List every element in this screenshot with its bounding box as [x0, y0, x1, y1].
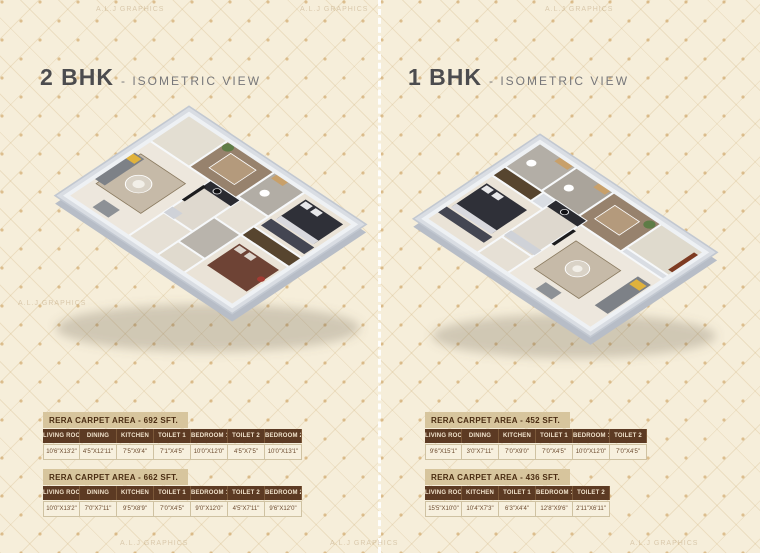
room-header-cell: TOILET 2	[228, 486, 265, 500]
floorplan-2bhk-isometric	[36, 100, 380, 372]
room-header-cell: TOILET 2	[573, 486, 610, 500]
room-header-cell: KITCHEN	[117, 429, 154, 443]
room-header-cell: LIVING ROOM	[43, 429, 80, 443]
room-header-cell: DINING	[80, 429, 117, 443]
rera-carpet-area-table: RERA CARPET AREA - 662 SFT. LIVING ROOMD…	[43, 467, 302, 517]
room-size-cell: 4'5"X7'11"	[228, 501, 265, 517]
room-header-cell: BEDROOM 1	[191, 429, 228, 443]
room-size-row: 15'5"X10'0"10'4"X7'3"6'3"X4'4"12'8"X9'6"…	[425, 500, 610, 517]
room-header-cell: TOILET 1	[536, 429, 573, 443]
room-header-cell: KITCHEN	[117, 486, 154, 500]
room-size-cell: 6'3"X4'4"	[499, 501, 536, 517]
room-header-cell: DINING	[462, 429, 499, 443]
room-size-row: 9'6"X15'1"3'0"X7'11"7'0"X9'0"7'0"X4'5"10…	[425, 443, 647, 460]
room-size-cell: 10'0"X13'1"	[265, 444, 302, 460]
rera-carpet-area-table: RERA CARPET AREA - 436 SFT. LIVING ROOMK…	[425, 467, 610, 517]
rera-carpet-area-title: RERA CARPET AREA - 692 SFT.	[43, 412, 188, 428]
room-header-cell: BEDROOM 1	[536, 486, 573, 500]
room-header-cell: LIVING ROOM	[425, 486, 462, 500]
view-type-label: - ISOMETRIC VIEW	[121, 74, 261, 88]
room-size-cell: 10'0"X12'0"	[191, 444, 228, 460]
room-size-row: 10'0"X13'2"7'0"X7'11"9'5"X8'9"7'0"X4'5"9…	[43, 500, 302, 517]
room-size-cell: 7'0"X4'5"	[610, 444, 647, 460]
room-header-cell: TOILET 2	[228, 429, 265, 443]
room-size-cell: 3'0"X7'11"	[462, 444, 499, 460]
room-size-cell: 9'6"X15'1"	[425, 444, 462, 460]
room-size-cell: 10'0"X13'2"	[43, 501, 80, 517]
page-title-2bhk: 2 BHK - ISOMETRIC VIEW	[40, 64, 261, 91]
room-size-cell: 7'0"X7'11"	[80, 501, 117, 517]
rera-carpet-area-title: RERA CARPET AREA - 662 SFT.	[43, 469, 188, 485]
room-size-cell: 9'0"X12'0"	[191, 501, 228, 517]
panel-2bhk: 2 BHK - ISOMETRIC VIEW	[0, 0, 380, 553]
rera-carpet-area-title: RERA CARPET AREA - 436 SFT.	[425, 469, 570, 485]
room-header-cell: BEDROOM 1	[573, 429, 610, 443]
room-size-cell: 9'5"X8'9"	[117, 501, 154, 517]
page-title-1bhk: 1 BHK - ISOMETRIC VIEW	[408, 64, 629, 91]
room-size-cell: 7'1"X4'5"	[154, 444, 191, 460]
panel-1bhk: 1 BHK - ISOMETRIC VIEW	[380, 0, 760, 553]
room-size-cell: 12'8"X9'6"	[536, 501, 573, 517]
room-header-row: LIVING ROOMDININGKITCHENTOILET 1BEDROOM …	[43, 429, 302, 443]
room-size-cell: 10'0"X12'0"	[573, 444, 610, 460]
room-size-row: 10'6"X13'2"4'5"X12'11"7'5"X9'4"7'1"X4'5"…	[43, 443, 302, 460]
room-header-row: LIVING ROOMDININGKITCHENTOILET 1BEDROOM …	[425, 429, 647, 443]
room-header-cell: DINING	[80, 486, 117, 500]
room-size-cell: 15'5"X10'0"	[425, 501, 462, 517]
room-header-cell: KITCHEN	[462, 486, 499, 500]
room-size-cell: 9'6"X12'0"	[265, 501, 302, 517]
unit-type-label: 1 BHK	[408, 64, 482, 91]
room-size-cell: 10'4"X7'3"	[462, 501, 499, 517]
room-size-cell: 7'0"X9'0"	[499, 444, 536, 460]
floorplan-1bhk-isometric	[412, 126, 736, 374]
room-size-cell: 10'6"X13'2"	[43, 444, 80, 460]
room-header-cell: LIVING ROOM	[43, 486, 80, 500]
unit-type-label: 2 BHK	[40, 64, 114, 91]
rera-carpet-area-title: RERA CARPET AREA - 452 SFT.	[425, 412, 570, 428]
room-header-row: LIVING ROOMDININGKITCHENTOILET 1BEDROOM …	[43, 486, 302, 500]
room-header-cell: KITCHEN	[499, 429, 536, 443]
room-header-cell: TOILET 2	[610, 429, 647, 443]
room-header-cell: BEDROOM 1	[191, 486, 228, 500]
room-header-cell: TOILET 1	[154, 486, 191, 500]
view-type-label: - ISOMETRIC VIEW	[489, 74, 629, 88]
room-header-cell: LIVING ROOM	[425, 429, 462, 443]
room-size-cell: 7'5"X9'4"	[117, 444, 154, 460]
room-header-cell: BEDROOM 2	[265, 486, 302, 500]
room-size-cell: 2'11"X6'11"	[573, 501, 610, 517]
room-header-row: LIVING ROOMKITCHENTOILET 1BEDROOM 1TOILE…	[425, 486, 610, 500]
rera-carpet-area-table: RERA CARPET AREA - 452 SFT. LIVING ROOMD…	[425, 410, 647, 460]
room-header-cell: BEDROOM 2	[265, 429, 302, 443]
room-header-cell: TOILET 1	[154, 429, 191, 443]
room-size-cell: 4'5"X7'5"	[228, 444, 265, 460]
rera-carpet-area-table: RERA CARPET AREA - 692 SFT. LIVING ROOMD…	[43, 410, 302, 460]
room-size-cell: 4'5"X12'11"	[80, 444, 117, 460]
room-header-cell: TOILET 1	[499, 486, 536, 500]
brochure-page: A.L.J GRAPHICS A.L.J GRAPHICS A.L.J GRAP…	[0, 0, 760, 553]
room-size-cell: 7'0"X4'5"	[536, 444, 573, 460]
room-size-cell: 7'0"X4'5"	[154, 501, 191, 517]
